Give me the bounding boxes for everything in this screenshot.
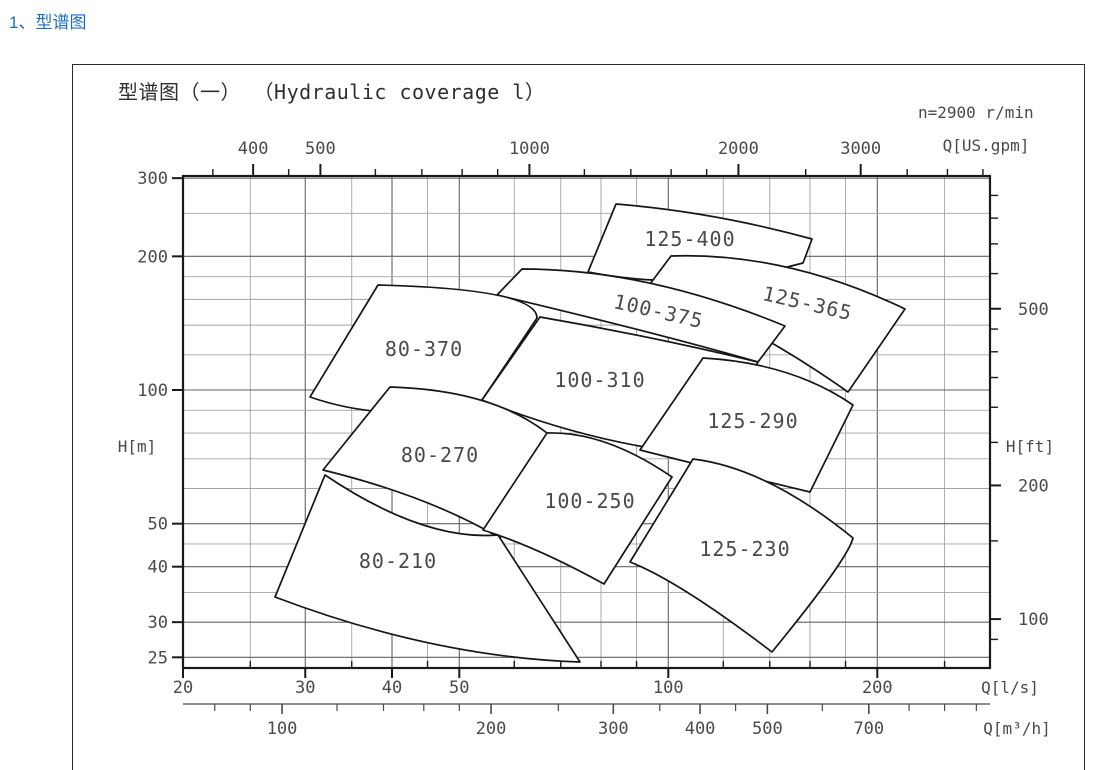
- right-axis-tick-label: 500: [1018, 300, 1049, 320]
- page: 1、型谱图 型谱图（一） （Hydraulic coverage l） n=29…: [0, 0, 1095, 770]
- right-axis-tick-label: 100: [1018, 610, 1049, 630]
- bottom-ls-tick-label: 200: [862, 678, 893, 698]
- region-label-80-210: 80-210: [359, 549, 437, 573]
- bottom-m3h-tick-label: 400: [685, 719, 716, 739]
- region-label-125-400: 125-400: [644, 227, 735, 251]
- top-axis-tick-label: 1000: [509, 139, 550, 159]
- top-axis-tick-label: 500: [305, 139, 336, 159]
- bottom-ls-tick-label: 50: [449, 678, 469, 698]
- bottom-ls-tick-label: 30: [295, 678, 315, 698]
- left-axis-unit-label: H[m]: [118, 437, 157, 456]
- region-label-100-250: 100-250: [544, 489, 635, 513]
- bottom-ls-tick-label: 100: [653, 678, 684, 698]
- region-label-80-270: 80-270: [401, 443, 479, 467]
- right-axis-unit-label: H[ft]: [1006, 437, 1054, 456]
- region-label-80-370: 80-370: [385, 337, 463, 361]
- region-label-125-290: 125-290: [707, 409, 798, 433]
- bottom-m3h-unit-label: Q[m³/h]: [983, 719, 1050, 738]
- left-axis-tick-label: 50: [148, 515, 168, 535]
- bottom-ls-tick-label: 20: [173, 678, 193, 698]
- top-axis-tick-label: 3000: [840, 139, 881, 159]
- bottom-m3h-tick-label: 300: [598, 719, 629, 739]
- region-label-125-230: 125-230: [699, 537, 790, 561]
- left-axis-tick-label: 200: [137, 247, 168, 267]
- region-label-100-310: 100-310: [554, 368, 645, 392]
- bottom-m3h-tick-label: 200: [476, 719, 507, 739]
- left-axis-tick-label: 40: [148, 558, 168, 578]
- left-axis-tick-label: 25: [148, 648, 168, 668]
- coverage-chart: 400500100020003000Q[US.gpm]2530405010020…: [0, 0, 1095, 770]
- bottom-m3h-tick-label: 700: [853, 719, 884, 739]
- top-axis-tick-label: 400: [238, 139, 269, 159]
- bottom-m3h-tick-label: 500: [752, 719, 783, 739]
- axis-top-usgpm: 400500100020003000Q[US.gpm]: [213, 136, 1029, 176]
- left-axis-tick-label: 100: [137, 381, 168, 401]
- right-axis-tick-label: 200: [1018, 476, 1049, 496]
- top-axis-tick-label: 2000: [718, 139, 759, 159]
- axis-bottom-m3h: 100200300400500700Q[m³/h]: [183, 704, 1051, 739]
- axis-right-ft: 100200500H[ft]: [990, 195, 1054, 639]
- pump-regions: 125-400125-365100-37580-370100-310125-29…: [275, 204, 905, 662]
- bottom-ls-unit-label: Q[l/s]: [981, 678, 1039, 697]
- axis-bottom-ls: 20304050100200Q[l/s]: [173, 661, 1039, 698]
- bottom-ls-tick-label: 40: [382, 678, 402, 698]
- left-axis-tick-label: 300: [137, 169, 168, 189]
- top-axis-unit-label: Q[US.gpm]: [943, 136, 1030, 155]
- left-axis-tick-label: 30: [148, 613, 168, 633]
- bottom-m3h-tick-label: 100: [267, 719, 298, 739]
- axis-left-m: 25304050100200300H[m]: [118, 169, 183, 668]
